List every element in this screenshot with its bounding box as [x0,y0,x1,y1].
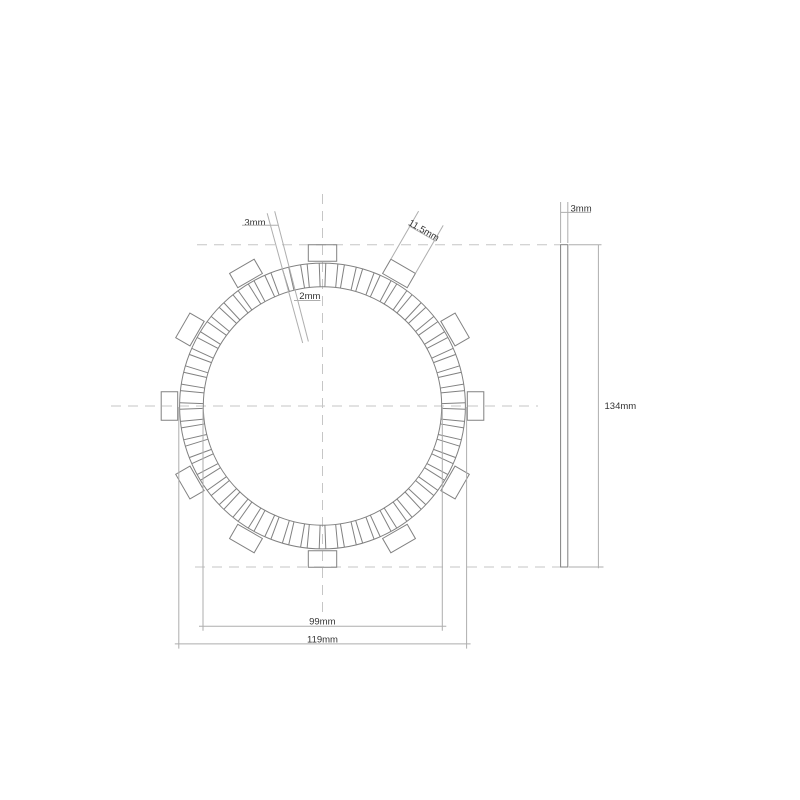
svg-text:11.5mm: 11.5mm [406,218,441,244]
svg-text:134mm: 134mm [605,401,637,412]
svg-text:99mm: 99mm [309,616,335,627]
svg-text:3mm: 3mm [244,217,265,228]
svg-text:3mm: 3mm [571,203,592,214]
svg-text:119mm: 119mm [307,634,338,645]
